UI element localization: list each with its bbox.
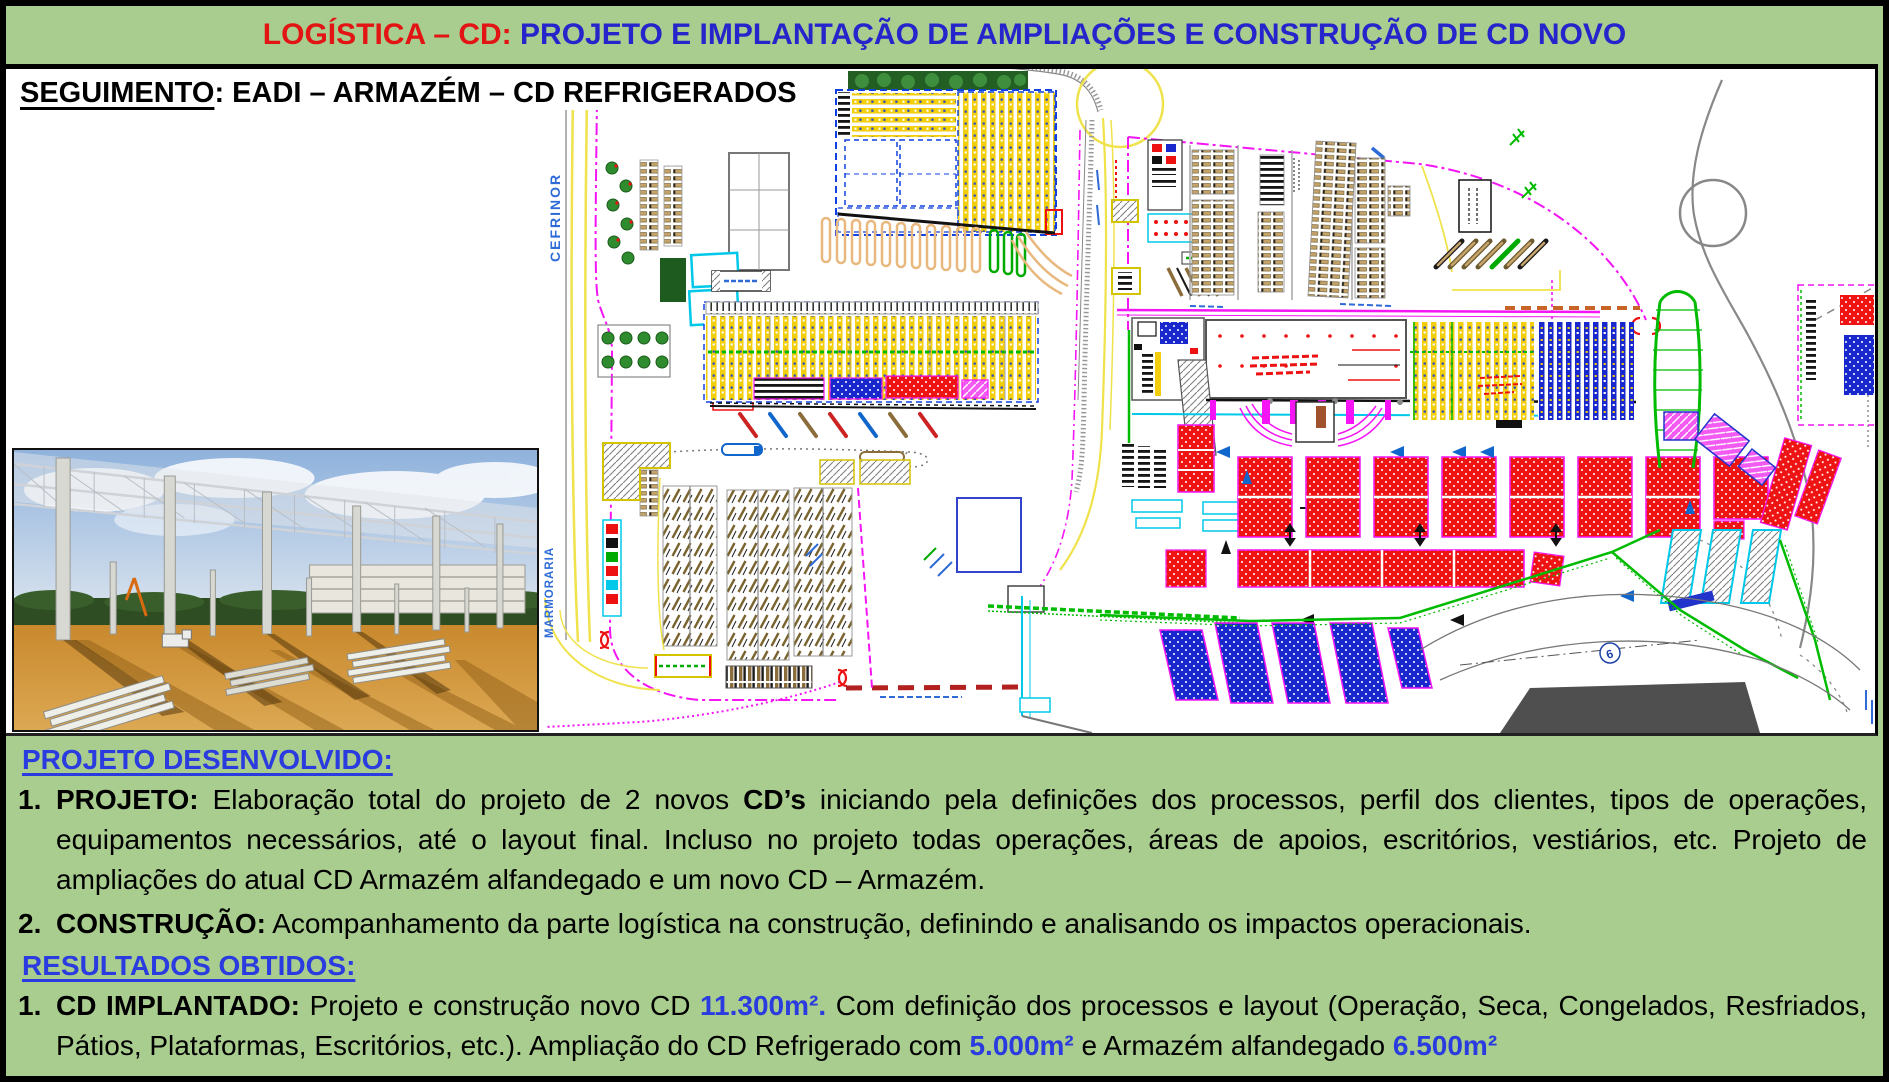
item-text: PROJETO: Elaboração total do projeto de … xyxy=(56,780,1867,900)
title-blue-part: PROJETO E IMPLANTAÇÃO DE AMPLIAÇÕES E CO… xyxy=(520,18,1626,51)
developed-item-2: 2. CONSTRUÇÃO: Acompanhamento da parte l… xyxy=(18,904,1867,944)
area-value-new-cd: 11.300m². xyxy=(700,990,826,1021)
item-number: 1. xyxy=(18,986,56,1066)
presentation-slide: LOGÍSTICA – CD: PROJETO E IMPLANTAÇÃO DE… xyxy=(0,0,1889,1082)
developed-heading: PROJETO DESENVOLVIDO: xyxy=(22,744,1867,776)
road-label-marmoraria: MARMORARIA xyxy=(544,547,556,638)
item-number: 1. xyxy=(18,780,56,900)
item-text: CONSTRUÇÃO: Acompanhamento da parte logí… xyxy=(56,904,1867,944)
results-heading: RESULTADOS OBTIDOS: xyxy=(22,950,1867,982)
slide-header: LOGÍSTICA – CD: PROJETO E IMPLANTAÇÃO DE… xyxy=(6,6,1883,64)
results-item-1: 1. CD IMPLANTADO: Projeto e construção n… xyxy=(18,986,1867,1066)
item-text: CD IMPLANTADO: Projeto e construção novo… xyxy=(56,986,1867,1066)
east-edge-complex xyxy=(1798,285,1875,425)
warehouse-b xyxy=(668,302,1038,467)
construction-photo xyxy=(12,448,539,732)
blue-diagonal-racks xyxy=(1160,623,1432,703)
construction-photo-art xyxy=(14,450,537,730)
subheading-underlined: SEGUIMENTO xyxy=(20,77,214,109)
road-label-cefrinor: CEFRINOR xyxy=(547,173,563,262)
subheading: SEGUIMENTO: EADI – ARMAZÉM – CD REFRIGER… xyxy=(20,77,807,110)
subheading-rest: : EADI – ARMAZÉM – CD REFRIGERADOS xyxy=(214,77,796,109)
area-value-refrigerated: 5.000m² xyxy=(969,1030,1073,1061)
truck-parking-field xyxy=(1148,140,1410,300)
footer-text-block: PROJETO DESENVOLVIDO: 1. PROJETO: Elabor… xyxy=(6,736,1883,1076)
developed-item-1: 1. PROJETO: Elaboração total do projeto … xyxy=(18,780,1867,900)
title-red-part: LOGÍSTICA – CD: xyxy=(263,18,520,51)
page-title: LOGÍSTICA – CD: PROJETO E IMPLANTAÇÃO DE… xyxy=(263,18,1626,52)
area-value-bonded: 6.500m² xyxy=(1393,1030,1497,1061)
red-rack-field xyxy=(1166,425,1841,626)
content-area: SEGUIMENTO: EADI – ARMAZÉM – CD REFRIGER… xyxy=(6,64,1878,736)
item-number: 2. xyxy=(18,904,56,944)
